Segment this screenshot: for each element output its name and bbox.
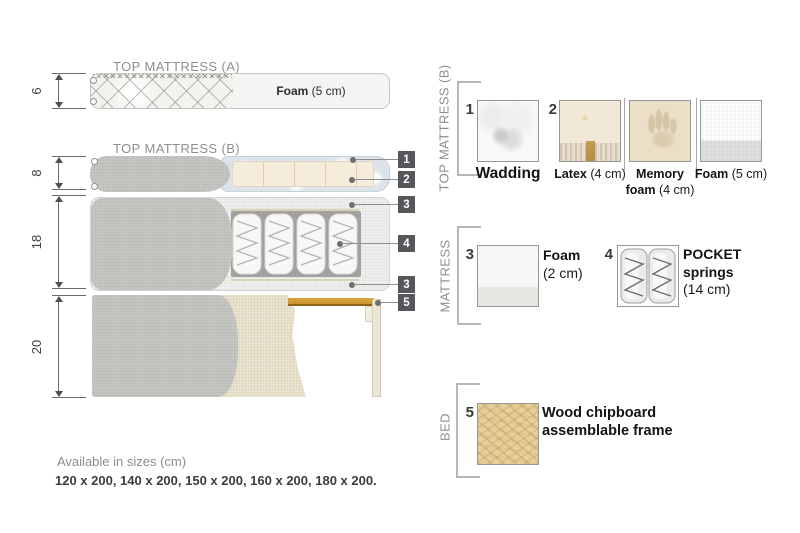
callout-5: 5 — [375, 294, 415, 311]
legend-item-number: 1 — [460, 101, 474, 118]
top-mattress-b-illustration — [90, 156, 390, 192]
dimension-arrow-line — [58, 197, 59, 287]
foam-layer-label: Foam (5 cm) — [233, 74, 389, 108]
callout-number-badge: 3 — [398, 196, 415, 213]
dimension-bed: 20 — [52, 295, 86, 398]
top-mattress-a-illustration: Foam (5 cm) — [90, 73, 390, 109]
callout-4: 4 — [337, 235, 415, 252]
wadding-label: Wadding — [468, 164, 548, 183]
dimension-tick — [52, 288, 86, 289]
section-label-top-mattress-b: TOP MATTRESS (B) — [437, 64, 452, 191]
foam-5cm-swatch — [700, 100, 762, 162]
zigzag-stitch-edge — [93, 74, 232, 78]
dimension-tick — [52, 397, 86, 398]
foam-5cm-name: Foam — [695, 167, 728, 181]
memory-foam-label: Memory foam (4 cm) — [625, 167, 695, 198]
pocket-springs-icon — [618, 246, 678, 306]
callout-number-badge: 3 — [398, 276, 415, 293]
legend-panel: TOP MATTRESS (B) 1 Wadding 2 Latex (4 cm… — [430, 0, 800, 533]
legend-item-number: 2 — [543, 101, 557, 118]
available-sizes-title: Available in sizes (cm) — [57, 454, 186, 469]
top-mattress-b-title: TOP MATTRESS (B) — [113, 141, 240, 156]
latex-detail: (4 cm) — [587, 167, 626, 181]
fabric-cover — [91, 198, 233, 290]
foam-5cm-label: Foam (5 cm) — [694, 167, 768, 183]
fabric-cover — [90, 156, 230, 192]
foam-2cm-name: Foam — [543, 247, 580, 263]
dimension-value: 20 — [29, 335, 45, 359]
dimension-top-mattress-b: 8 — [52, 156, 86, 190]
callout-line — [354, 204, 398, 205]
latex-name: Latex — [554, 167, 587, 181]
dimension-value: 8 — [29, 161, 45, 185]
arrow-down-icon — [55, 282, 63, 288]
button-tuft — [90, 98, 97, 105]
foam-2cm-label: Foam (2 cm) — [543, 247, 603, 282]
wood-slat — [288, 298, 374, 306]
button-tuft — [91, 158, 98, 165]
latex-label: Latex (4 cm) — [551, 167, 629, 183]
chipboard-label: Wood chipboard assemblable frame — [542, 404, 692, 440]
callout-number-badge: 1 — [398, 151, 415, 168]
callout-line — [380, 302, 398, 303]
arrow-up-icon — [55, 157, 63, 163]
foam-bottom-line — [231, 279, 359, 281]
legend-separator — [696, 98, 697, 172]
pocket-springs-swatch — [617, 245, 679, 307]
dimension-mattress: 18 — [52, 195, 86, 289]
dimension-arrow-line — [58, 297, 59, 396]
foam-5cm-detail: (5 cm) — [728, 167, 767, 181]
dimension-tick — [52, 108, 86, 109]
foam-2cm-detail: (2 cm) — [543, 265, 603, 283]
callout-number-badge: 2 — [398, 171, 415, 188]
button-tuft — [91, 183, 98, 190]
dimension-top-mattress-a: 6 — [52, 73, 86, 109]
arrow-down-icon — [55, 391, 63, 397]
arrow-up-icon — [55, 196, 63, 202]
callout-3-bottom: 3 — [349, 276, 415, 293]
section-label-mattress: MATTRESS — [438, 239, 453, 312]
arrow-down-icon — [55, 183, 63, 189]
callout-number-badge: 5 — [398, 294, 415, 311]
mattress-construction-infographic: 6 8 18 20 TOP — [0, 0, 800, 533]
latex-swatch — [559, 100, 621, 162]
wadding-swatch — [477, 100, 539, 162]
bed-base-cover — [92, 295, 238, 397]
wadding-name: Wadding — [476, 165, 541, 182]
callout-line — [355, 159, 398, 160]
chipboard-swatch — [477, 403, 539, 465]
callout-number-badge: 4 — [398, 235, 415, 252]
foam-detail: (5 cm) — [308, 84, 345, 98]
memory-foam-detail: (4 cm) — [655, 183, 694, 197]
callout-line — [342, 243, 398, 244]
dimension-value: 6 — [29, 79, 45, 103]
chipboard-name: Wood chipboard assemblable frame — [542, 405, 673, 439]
legend-item-number: 5 — [460, 404, 474, 421]
bed-frame-bracket — [365, 306, 373, 322]
arrow-up-icon — [55, 74, 63, 80]
pocket-springs-label: POCKET springs (14 cm) — [683, 246, 759, 299]
arrow-down-icon — [55, 102, 63, 108]
arrow-up-icon — [55, 296, 63, 302]
callout-line — [354, 284, 398, 285]
foam-2cm-swatch — [477, 245, 539, 307]
dimension-tick — [52, 189, 86, 190]
legend-item-number: 4 — [599, 246, 613, 263]
foam-name: Foam — [276, 84, 308, 98]
button-tuft — [90, 77, 97, 84]
callout-line — [354, 179, 398, 180]
memory-foam-swatch — [629, 100, 691, 162]
callout-3-top: 3 — [349, 196, 415, 213]
pocket-springs-detail: (14 cm) — [683, 281, 759, 299]
top-mattress-a-title: TOP MATTRESS (A) — [113, 59, 240, 74]
available-sizes-list: 120 x 200, 140 x 200, 150 x 200, 160 x 2… — [55, 473, 377, 488]
legend-item-number: 3 — [460, 246, 474, 263]
pocket-springs-name: POCKET springs — [683, 246, 741, 280]
dimension-value: 18 — [29, 230, 45, 254]
section-label-bed: BED — [438, 413, 453, 441]
callout-2: 2 — [349, 171, 415, 188]
quilted-cover-section — [91, 74, 233, 108]
callout-1: 1 — [350, 151, 415, 168]
legend-separator — [624, 98, 625, 172]
bed-frame-side — [372, 299, 381, 397]
